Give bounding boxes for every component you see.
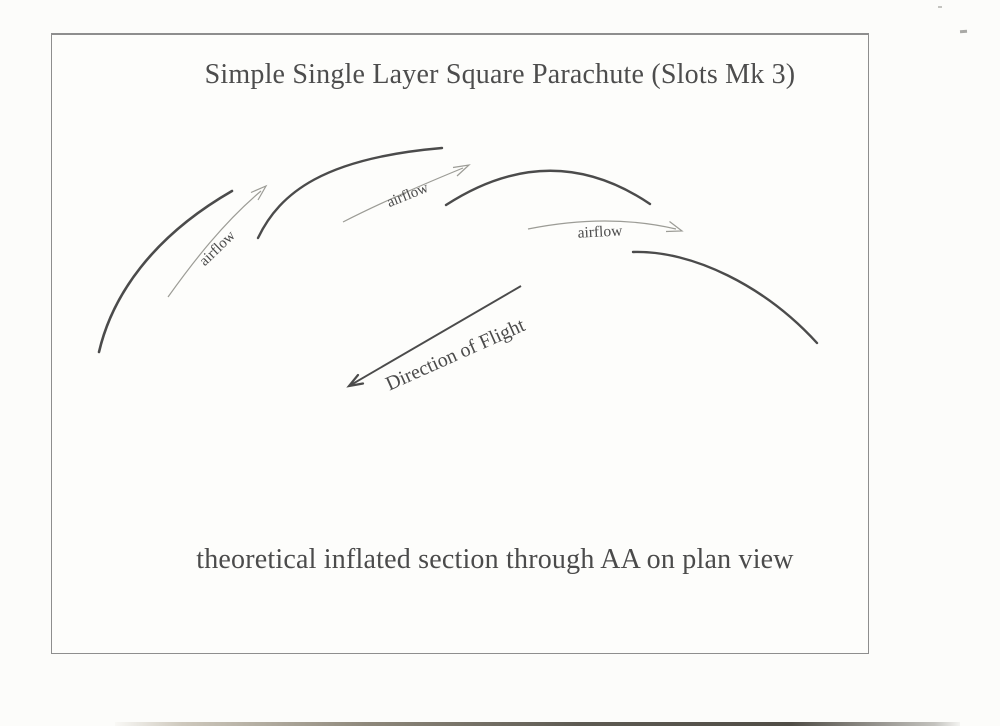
airflow-label-3: airflow xyxy=(577,222,623,241)
canopy-arc-1 xyxy=(99,191,232,352)
scan-edge-shadow xyxy=(115,722,960,726)
airflow-arrow-3-head-icon xyxy=(666,222,682,232)
scan-speck-2 xyxy=(938,6,942,8)
canopy-arc-4 xyxy=(633,252,817,343)
flight-direction-head-icon xyxy=(349,375,363,386)
scan-speck-1 xyxy=(960,30,967,33)
canopy-arc-3 xyxy=(446,171,650,205)
caption: theoretical inflated section through AA … xyxy=(0,544,990,576)
parachute-section-diagram: airflow airflow airflow Direction of Fli… xyxy=(0,0,1000,726)
airflow-label-2: airflow xyxy=(385,180,431,211)
